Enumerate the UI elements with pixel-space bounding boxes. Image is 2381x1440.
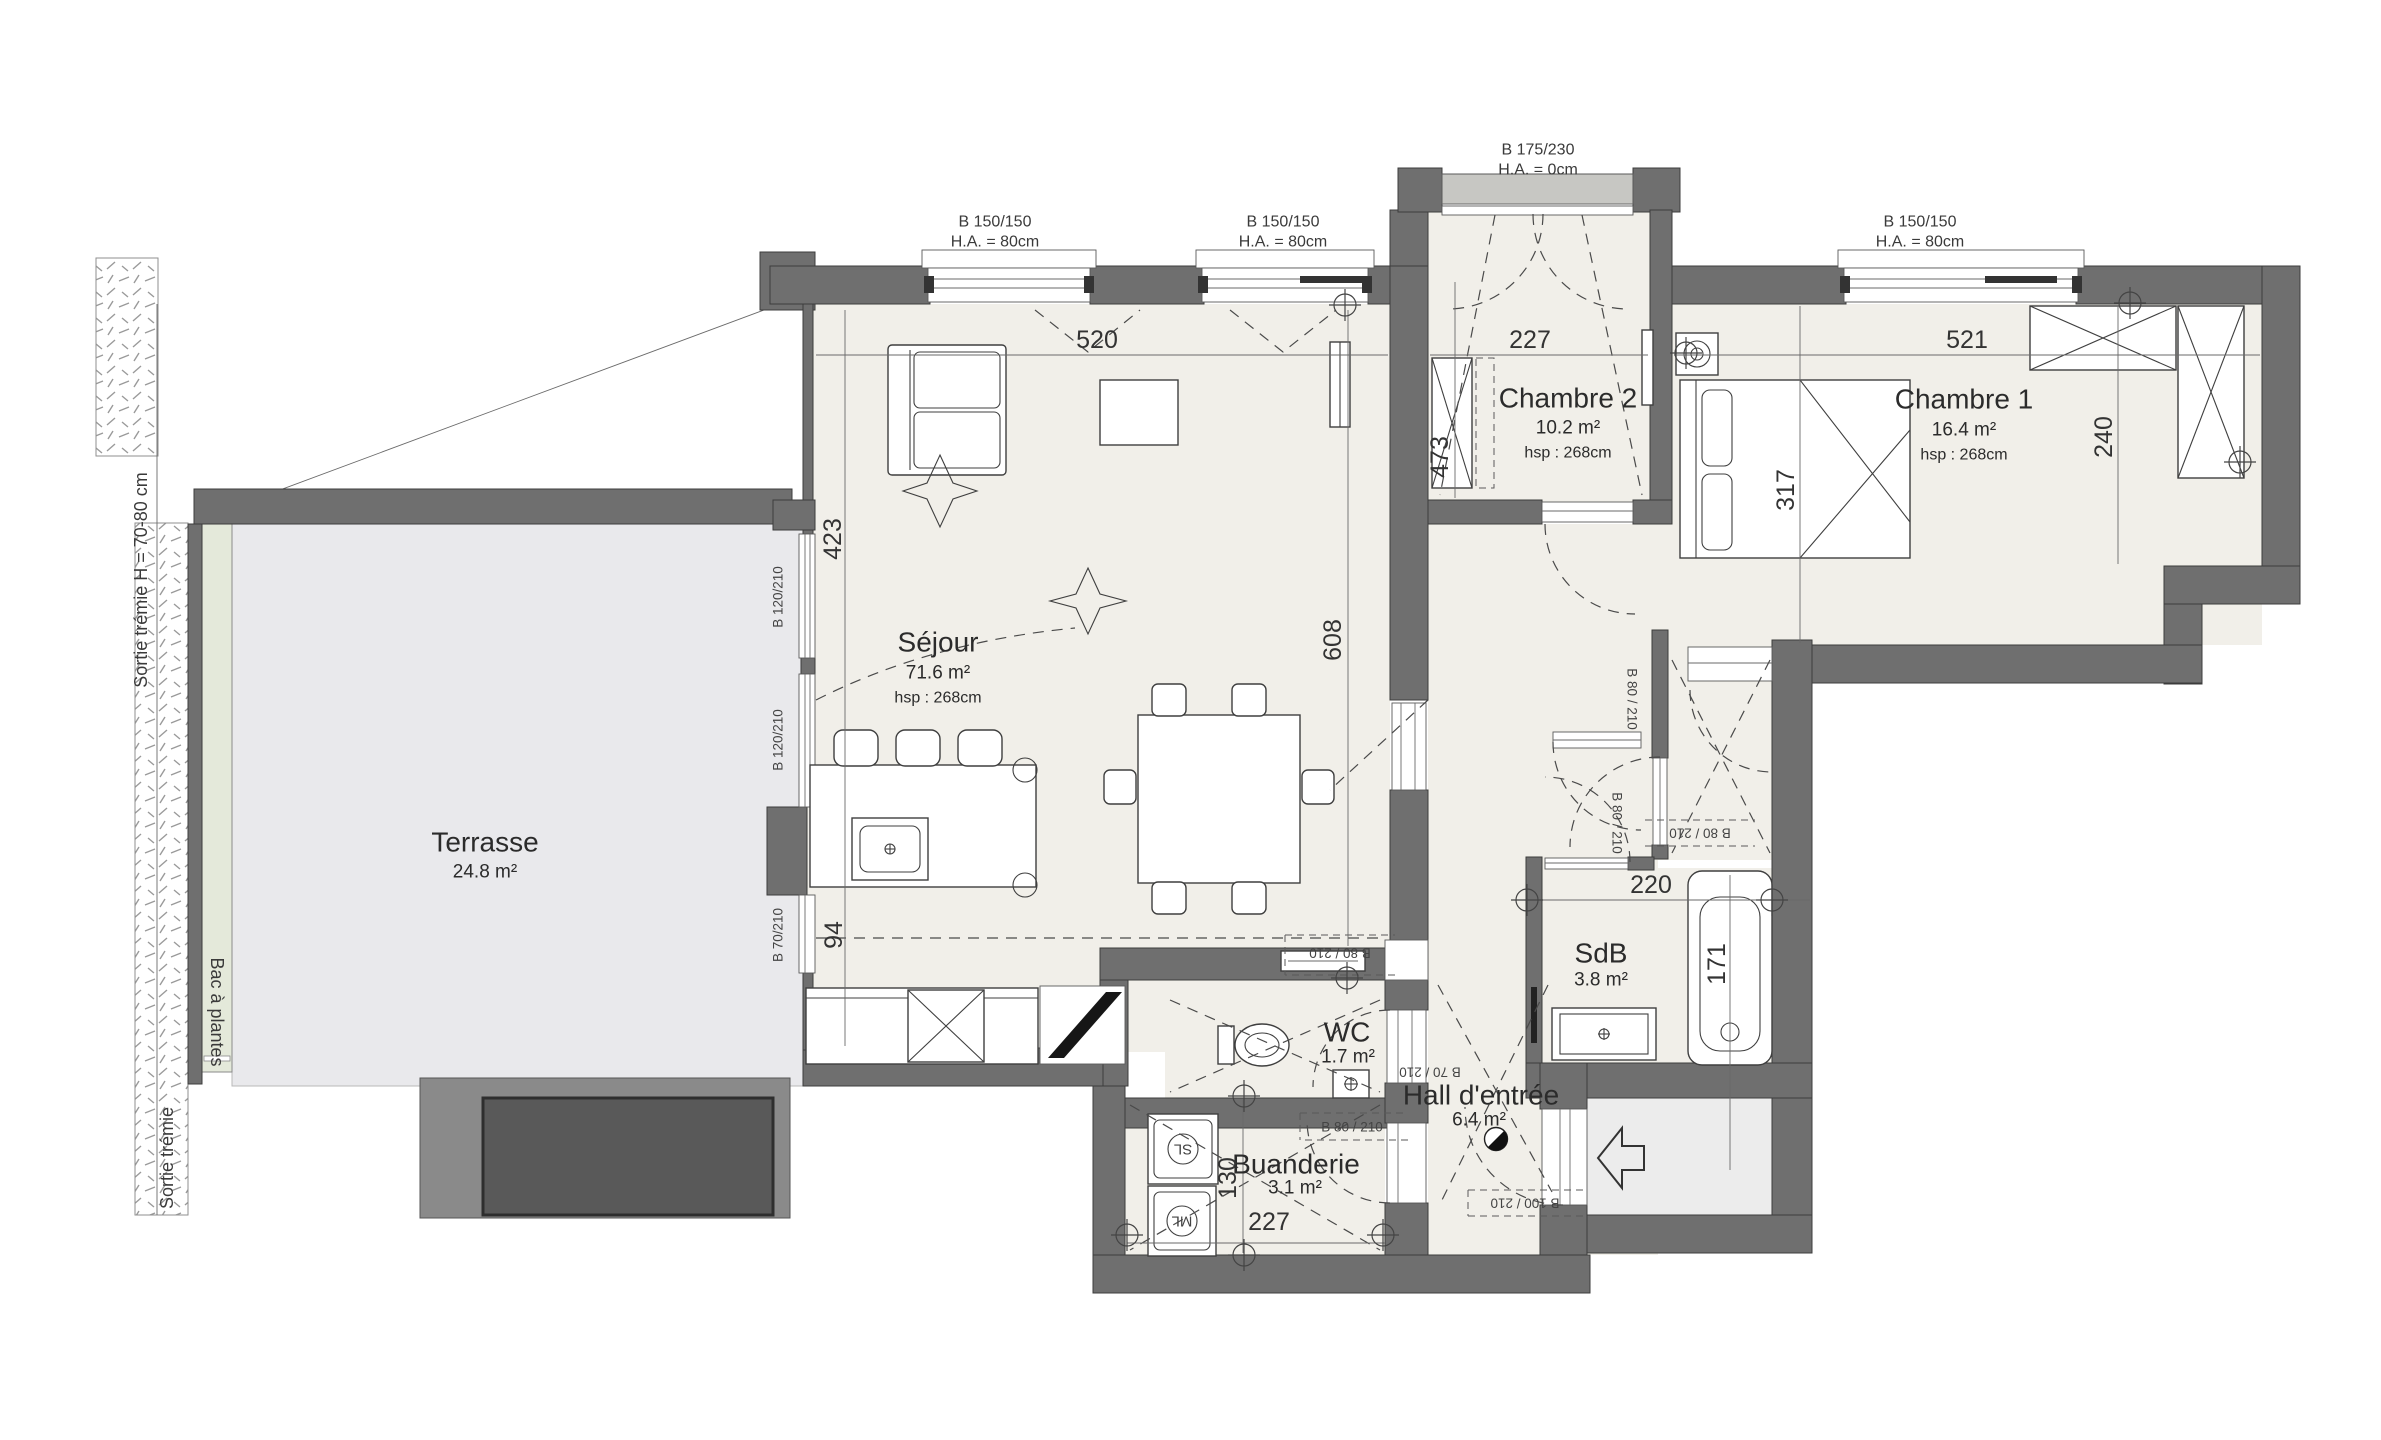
annotation-planter: Bac à plantes: [207, 957, 227, 1066]
room-area-chambre1: 16.4 m²: [1932, 420, 1996, 441]
window-label-2-size: B 150/150: [1247, 214, 1320, 231]
door-label-corridor-c: B 80 / 210: [1669, 826, 1731, 841]
towel-radiator: [1531, 987, 1537, 1043]
dim-sdb-width: 220: [1630, 871, 1672, 899]
window-label-3-size: B 150/150: [1884, 214, 1957, 231]
dim-chambre1-width: 521: [1946, 326, 1988, 354]
door-label-terrace-lower: B 120/210: [771, 709, 786, 771]
room-hsp-sejour: hsp : 268cm: [894, 690, 981, 707]
floor-plan: Séjour 71.6 m² hsp : 268cm Chambre 2 10.…: [0, 0, 2381, 1440]
door-label-corridor-a: B 80 / 210: [1625, 668, 1640, 730]
room-area-terrasse: 24.8 m²: [453, 862, 517, 883]
room-label-chambre1: Chambre 1: [1895, 384, 2034, 415]
dim-chambre2-height: 473: [1426, 436, 1454, 478]
dim-buanderie-height: 130: [1214, 1157, 1242, 1199]
tremie-slope-line: [210, 310, 764, 516]
room-label-buanderie: Buanderie: [1232, 1149, 1360, 1180]
door-label-terrace-upper: B 120/210: [771, 566, 786, 628]
room-area-chambre2: 10.2 m²: [1536, 418, 1600, 439]
dim-chambre2-width: 227: [1509, 326, 1551, 354]
radiator-ch2: [1642, 330, 1653, 405]
toilet: [1235, 1024, 1289, 1066]
balcony-door-ha: H.A. = 0cm: [1498, 162, 1578, 179]
room-label-sejour: Séjour: [898, 627, 979, 658]
window-label-3-ha: H.A. = 80cm: [1876, 234, 1964, 251]
room-hsp-chambre2: hsp : 268cm: [1524, 445, 1611, 462]
room-hsp-chambre1: hsp : 268cm: [1920, 447, 2007, 464]
dim-buanderie-width: 227: [1248, 1208, 1290, 1236]
hatch-area-top: [96, 258, 158, 456]
dim-sejour-left-upper: 423: [819, 518, 847, 560]
dim-chambre1-right: 240: [2090, 416, 2118, 458]
entrance-landing-floor: [1585, 1098, 1778, 1217]
dressing-floor: [1658, 524, 1774, 860]
window-label-1-size: B 150/150: [959, 214, 1032, 231]
room-label-terrasse: Terrasse: [431, 827, 538, 858]
room-label-chambre2: Chambre 2: [1499, 383, 1638, 414]
floor-plan-page: Séjour 71.6 m² hsp : 268cm Chambre 2 10.…: [0, 0, 2381, 1440]
door-label-entrance: B 100 / 210: [1490, 1196, 1559, 1211]
room-area-sejour: 71.6 m²: [906, 663, 970, 684]
door-label-sejour-hall: B 80 / 210: [1309, 946, 1371, 961]
room-label-sdb: SdB: [1575, 938, 1628, 969]
dim-sejour-left-lower: 94: [820, 921, 848, 949]
rug: [1100, 380, 1178, 445]
room-area-sdb: 3.8 m²: [1574, 970, 1628, 991]
patio-dark-area: [483, 1098, 773, 1215]
balcony-door-size: B 175/230: [1502, 142, 1575, 159]
toilet-tank: [1218, 1026, 1234, 1064]
terrace-floor: [232, 524, 803, 1086]
door-label-wc: B 70 / 210: [1399, 1065, 1461, 1080]
door-label-terrace-small: B 70/210: [771, 908, 786, 962]
dim-bathtub-length: 171: [1703, 943, 1731, 985]
bed: [1680, 380, 1910, 558]
dining-table: [1138, 715, 1300, 883]
dim-sejour-width: 520: [1076, 326, 1118, 354]
dim-chambre1-depth: 317: [1772, 469, 1800, 511]
sofa: [888, 345, 1006, 475]
appliance-label-dryer: SL: [1174, 1141, 1192, 1158]
appliance-label-washer: ML: [1172, 1213, 1193, 1230]
room-label-wc: WC: [1324, 1017, 1371, 1048]
room-area-wc: 1.7 m²: [1321, 1047, 1375, 1068]
annotation-tremie: Sortie trémie: [157, 1107, 177, 1209]
annotation-tremie-note: Sortie trémie H = 70-80 cm: [131, 472, 151, 688]
room-label-hall: Hall d'entrée: [1403, 1080, 1559, 1111]
dim-sejour-height: 608: [1319, 619, 1347, 661]
room-area-buanderie: 3.1 m²: [1268, 1178, 1322, 1199]
window-label-2-ha: H.A. = 80cm: [1239, 234, 1327, 251]
door-label-corridor-b: B 80 / 210: [1610, 792, 1625, 854]
window-label-1-ha: H.A. = 80cm: [951, 234, 1039, 251]
room-area-hall: 6.4 m²: [1452, 1110, 1506, 1131]
door-label-buanderie: B 80 / 210: [1321, 1120, 1383, 1135]
terrace-north-wall: [194, 489, 792, 524]
